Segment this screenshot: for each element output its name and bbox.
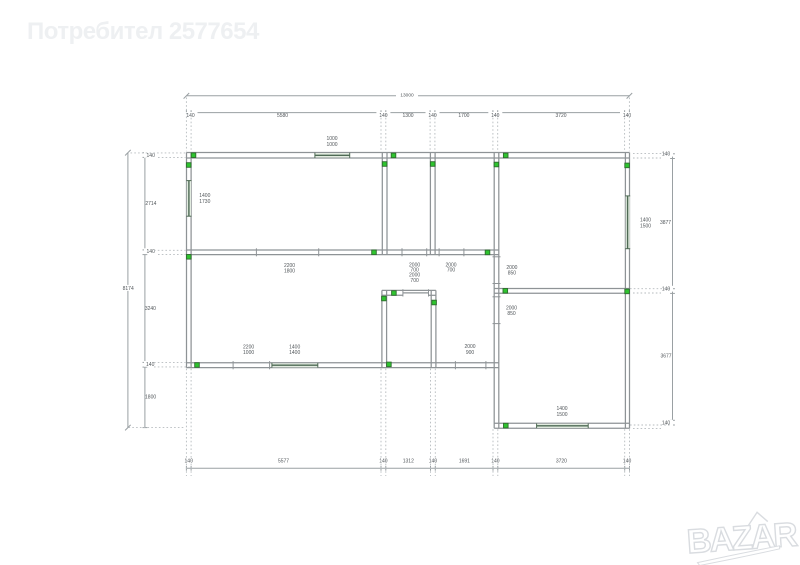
svg-text:850: 850 — [508, 271, 517, 277]
svg-text:1000: 1000 — [326, 142, 337, 148]
svg-text:2714: 2714 — [145, 201, 156, 207]
svg-text:3877: 3877 — [660, 220, 671, 226]
svg-text:1500: 1500 — [640, 224, 651, 230]
svg-text:1000: 1000 — [243, 350, 254, 356]
svg-text:1800: 1800 — [284, 269, 295, 275]
svg-text:140: 140 — [146, 362, 155, 368]
svg-text:5577: 5577 — [278, 458, 289, 464]
svg-text:3677: 3677 — [660, 354, 671, 360]
svg-text:140: 140 — [379, 113, 388, 119]
svg-text:1691: 1691 — [459, 458, 470, 464]
svg-text:850: 850 — [507, 311, 516, 317]
svg-text:700: 700 — [447, 268, 456, 274]
svg-text:140: 140 — [623, 458, 632, 464]
svg-text:1730: 1730 — [199, 199, 210, 205]
svg-text:1800: 1800 — [145, 395, 156, 401]
svg-text:140: 140 — [662, 421, 671, 427]
svg-text:140: 140 — [186, 113, 195, 119]
svg-text:140: 140 — [623, 113, 632, 119]
svg-text:3720: 3720 — [556, 458, 567, 464]
svg-text:1300: 1300 — [402, 113, 413, 119]
svg-text:140: 140 — [491, 458, 500, 464]
svg-text:700: 700 — [410, 278, 419, 284]
svg-text:140: 140 — [147, 153, 156, 159]
svg-text:1700: 1700 — [458, 113, 469, 119]
svg-text:8174: 8174 — [123, 286, 134, 292]
svg-text:3240: 3240 — [145, 306, 156, 312]
svg-text:1500: 1500 — [556, 412, 567, 418]
svg-text:140: 140 — [662, 287, 671, 293]
svg-text:140: 140 — [429, 458, 438, 464]
svg-text:900: 900 — [466, 350, 475, 356]
svg-text:140: 140 — [428, 113, 437, 119]
svg-text:1400: 1400 — [289, 350, 300, 356]
svg-text:5580: 5580 — [277, 113, 288, 119]
svg-text:140: 140 — [147, 249, 156, 255]
svg-text:140: 140 — [185, 458, 194, 464]
svg-text:140: 140 — [379, 458, 388, 464]
svg-text:1312: 1312 — [403, 458, 414, 464]
svg-text:3720: 3720 — [555, 113, 566, 119]
svg-text:13000: 13000 — [400, 93, 414, 99]
svg-text:140: 140 — [662, 152, 671, 158]
svg-text:140: 140 — [491, 113, 500, 119]
